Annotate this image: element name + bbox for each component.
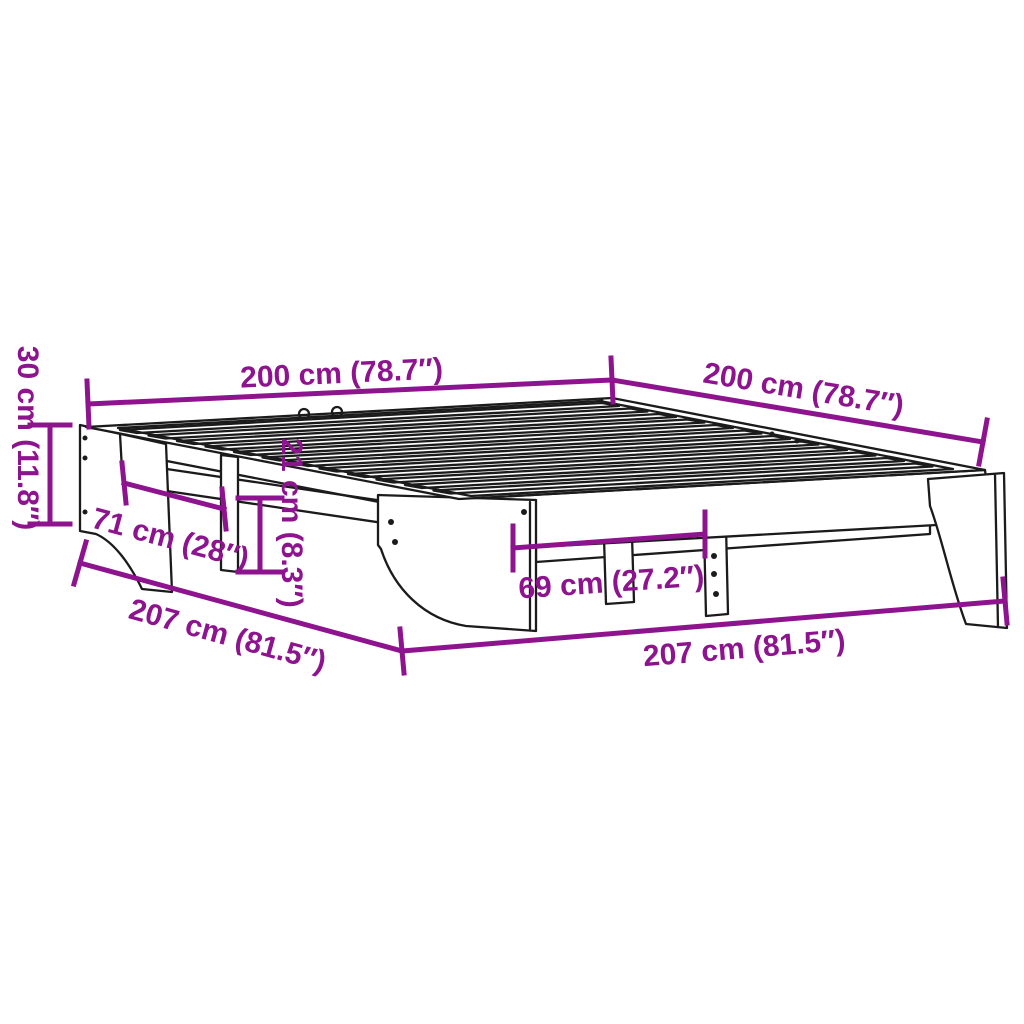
dimension-tick [87, 381, 89, 427]
screw-dot [83, 510, 88, 515]
dimension-tick [400, 629, 404, 673]
screw-dot [795, 439, 800, 444]
screw-dot [711, 571, 717, 577]
screw-dot [521, 509, 527, 515]
screw-dot [392, 539, 398, 545]
dimension-height-left: 30 cm (11.8″) [11, 346, 70, 530]
screw-dot [713, 591, 719, 597]
dimension-label: 207 cm (81.5″) [642, 624, 847, 674]
screw-dot [388, 519, 394, 525]
screw-dot [599, 398, 603, 402]
screw-dot [83, 436, 88, 441]
dimension-label: 69 cm (27.2″) [517, 560, 705, 606]
support-bracket [704, 526, 728, 616]
screw-dot [83, 456, 88, 461]
diagram-canvas: 200 cm (78.7″) 200 cm (78.7″) 30 cm (11.… [0, 0, 1024, 1024]
screw-dot [711, 553, 717, 559]
screw-dot [770, 432, 775, 437]
dimension-label: 30 cm (11.8″) [11, 346, 44, 530]
dimension-label: 21 cm (8.3″) [275, 438, 308, 607]
bed-frame-dimension-diagram: 200 cm (78.7″) 200 cm (78.7″) 30 cm (11.… [0, 0, 1024, 1024]
